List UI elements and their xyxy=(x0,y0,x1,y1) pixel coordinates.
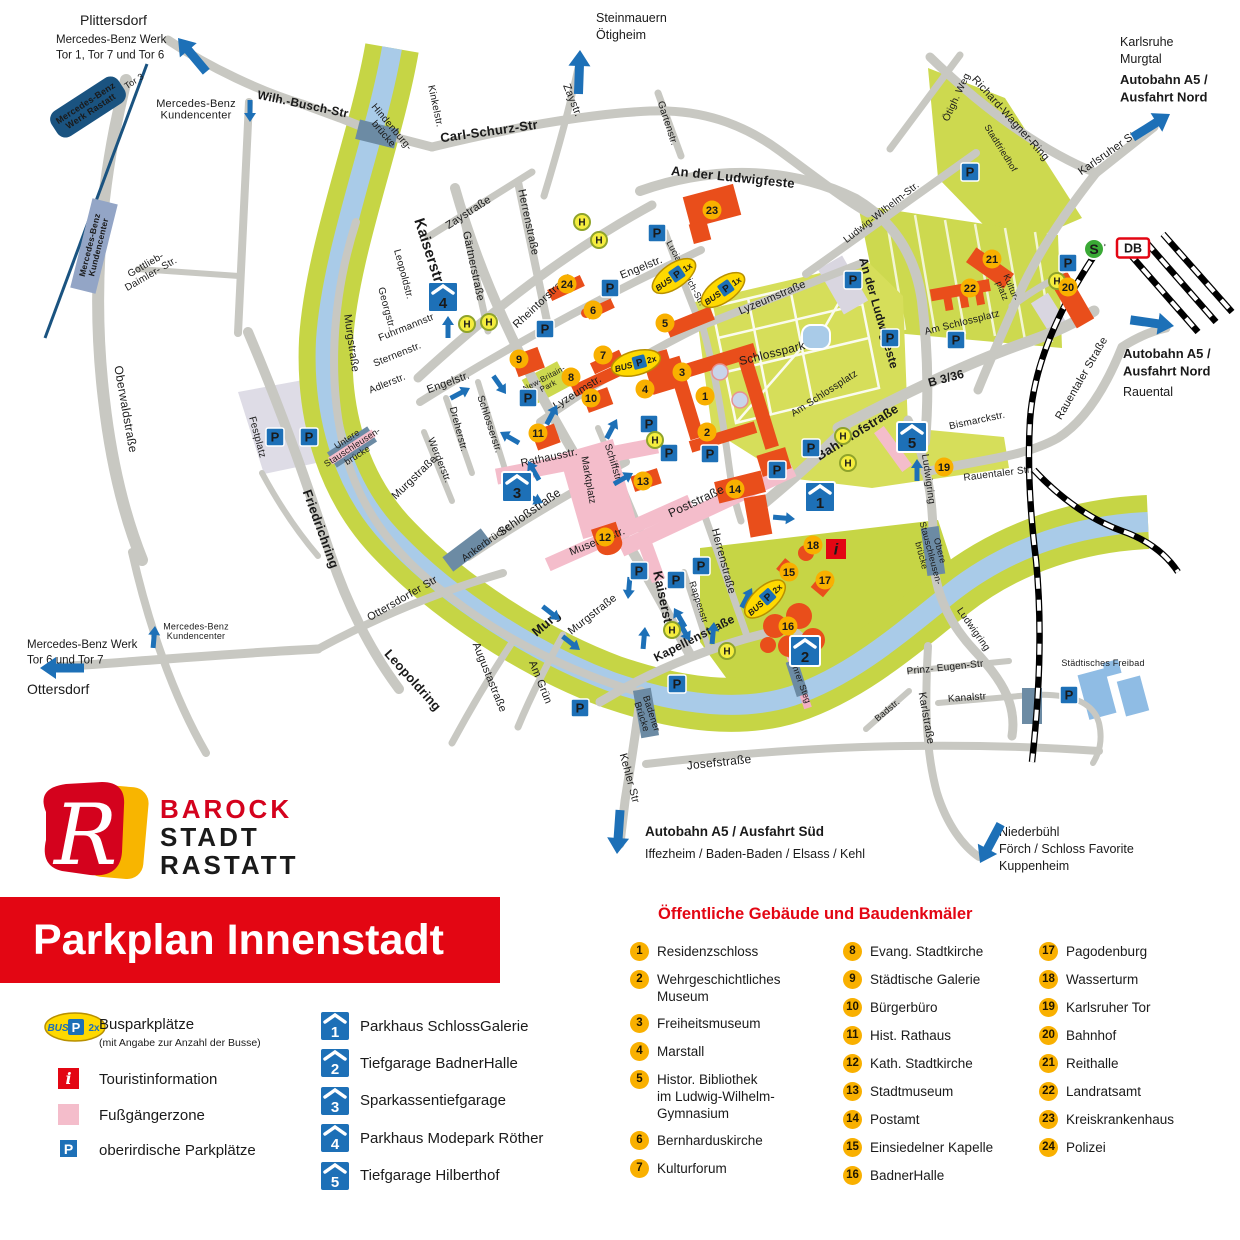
building-item: 13Stadtmuseum xyxy=(843,1082,1038,1101)
parking-icon: P xyxy=(947,331,965,349)
svg-text:P: P xyxy=(886,331,895,346)
svg-text:S: S xyxy=(1089,241,1098,257)
building-marker: 21 xyxy=(983,250,1002,269)
parking-icon: P xyxy=(667,571,685,589)
svg-text:3: 3 xyxy=(679,367,685,379)
garage-legend-icon: 4 xyxy=(320,1123,350,1153)
legend-tourist-label: Touristinformation xyxy=(99,1071,217,1088)
svg-text:P: P xyxy=(1064,256,1073,271)
garage-legend-icon: 1 xyxy=(320,1011,350,1041)
building-marker: 14 xyxy=(726,480,745,499)
garage-item: 3 Sparkassentiefgarage xyxy=(320,1086,506,1116)
one-way-arrow xyxy=(773,511,796,525)
garage-legend-icon: 3 xyxy=(320,1086,350,1116)
street-label: Sternenstr. xyxy=(372,340,423,369)
street-label: Badstr. xyxy=(873,697,902,724)
building-item-label: Freiheitsmuseum xyxy=(657,1014,761,1032)
svg-text:P: P xyxy=(645,417,654,432)
svg-text:15: 15 xyxy=(783,567,795,579)
garage-icon: 4 xyxy=(428,282,458,312)
building-item: 2Wehrgeschichtliches Museum xyxy=(630,970,840,1005)
svg-text:23: 23 xyxy=(706,205,718,217)
garage-icon: 3 xyxy=(502,472,532,502)
building-item-label: Karlsruher Tor xyxy=(1066,998,1151,1016)
svg-text:P: P xyxy=(672,573,681,588)
building-item: 14Postamt xyxy=(843,1110,1038,1129)
svg-text:13: 13 xyxy=(637,476,649,488)
parking-icon: P xyxy=(266,428,284,446)
destination-label: Autobahn A5 /Ausfahrt Nord xyxy=(1123,346,1211,379)
svg-text:P: P xyxy=(1065,688,1074,703)
street-label: Georgstr. xyxy=(375,286,397,330)
svg-text:P: P xyxy=(849,273,858,288)
building-marker: 11 xyxy=(529,424,548,443)
parking-icon: P xyxy=(961,163,979,181)
garage-item-label: Parkhaus SchlossGalerie xyxy=(360,1018,528,1035)
bus-stop-icon: H xyxy=(719,643,735,659)
db-icon: DB xyxy=(1117,239,1149,258)
svg-text:4: 4 xyxy=(642,384,649,396)
svg-text:P: P xyxy=(271,430,280,445)
legend-bus-label: Busparkplätze xyxy=(99,1016,194,1033)
building-marker: 9 xyxy=(510,350,529,369)
bus-stop-icon: H xyxy=(459,316,475,332)
svg-text:P: P xyxy=(653,226,662,241)
svg-text:DB: DB xyxy=(1124,242,1142,256)
building-marker: 16 xyxy=(779,617,798,636)
building-item-number: 12 xyxy=(843,1054,862,1073)
direction-arrow xyxy=(170,31,215,79)
building-item-label: Einsiedelner Kapelle xyxy=(870,1138,993,1156)
building-item-label: Reithalle xyxy=(1066,1054,1119,1072)
building-item-number: 1 xyxy=(630,942,649,961)
logo-word-stadt: STADT xyxy=(160,822,260,852)
street-label: Herrenstraße xyxy=(515,188,541,256)
svg-text:P: P xyxy=(706,447,715,462)
building-item-number: 19 xyxy=(1039,998,1058,1017)
svg-text:P: P xyxy=(665,446,674,461)
building-item-label: Postamt xyxy=(870,1110,920,1128)
street-label: Adlerstr. xyxy=(367,372,407,397)
garage-item: 5 Tiefgarage Hilberthof xyxy=(320,1161,500,1191)
svg-text:P: P xyxy=(966,165,975,180)
schlosspark-pond xyxy=(802,325,830,349)
street-label: Mercedes-BenzKundencenter xyxy=(156,98,236,122)
building-item: 23Kreiskrankenhaus xyxy=(1039,1110,1239,1129)
bus-stop-icon: H xyxy=(664,622,680,638)
svg-text:21: 21 xyxy=(986,254,998,266)
street-label: Karlstraße xyxy=(916,691,937,745)
building-item-label: Evang. Stadtkirche xyxy=(870,942,983,960)
building-marker: 17 xyxy=(816,571,835,590)
svg-text:H: H xyxy=(578,218,585,229)
svg-text:P: P xyxy=(697,559,706,574)
parking-icon: P xyxy=(1060,686,1078,704)
bus-stop-icon: H xyxy=(835,428,851,444)
building-item: 5Histor. Bibliothek im Ludwig-Wilhelm- G… xyxy=(630,1070,840,1122)
building-item: 1Residenzschloss xyxy=(630,942,840,961)
svg-text:P: P xyxy=(541,322,550,337)
building-item: 18Wasserturm xyxy=(1039,970,1239,989)
buildings-column-3: 17Pagodenburg18Wasserturm19Karlsruher To… xyxy=(1039,942,1239,1166)
building-item-number: 14 xyxy=(843,1110,862,1129)
destination-label: KarlsruheMurgtal xyxy=(1120,35,1174,66)
building-item-number: 23 xyxy=(1039,1110,1058,1129)
building-item: 6Bernharduskirche xyxy=(630,1131,840,1150)
svg-text:20: 20 xyxy=(1062,282,1074,294)
building-item: 22Landratsamt xyxy=(1039,1082,1239,1101)
parking-map-poster: Wilh.-Busch-StrCarl-Schurz-StrZaystr.Kin… xyxy=(0,0,1240,1240)
building-item-number: 20 xyxy=(1039,1026,1058,1045)
surface-parking-legend-icon: P xyxy=(59,1139,78,1158)
legend-surface-label: oberirdische Parkplätze xyxy=(99,1142,256,1159)
barock-stadt-rastatt-logo: R BAROCK STADT RASTATT xyxy=(28,778,358,888)
street-label: Städtisches Freibad xyxy=(1061,658,1144,668)
building-item: 10Bürgerbüro xyxy=(843,998,1038,1017)
building-item-label: Wehrgeschichtliches Museum xyxy=(657,970,781,1005)
street-label: Schlosserstr. xyxy=(475,394,504,454)
street-label: Rauentaler Straße xyxy=(1053,335,1110,422)
street-label: Bismarckstr. xyxy=(948,410,1006,433)
bus-stop-icon: H xyxy=(481,314,497,330)
destination-label: SteinmauernÖtigheim xyxy=(596,11,667,42)
parking-icon: P xyxy=(648,224,666,242)
title-banner: Parkplan Innenstadt xyxy=(0,897,500,983)
legend-bus-sublabel: (mit Angabe zur Anzahl der Busse) xyxy=(99,1037,261,1049)
building-item: 7Kulturforum xyxy=(630,1159,840,1178)
svg-text:P: P xyxy=(305,430,314,445)
street-label: Kehler Str xyxy=(617,752,642,804)
building-marker: 19 xyxy=(935,458,954,477)
svg-text:H: H xyxy=(595,236,602,247)
building-item-label: Bahnhof xyxy=(1066,1026,1116,1044)
building-marker: 23 xyxy=(703,201,722,220)
building-item: 11Hist. Rathaus xyxy=(843,1026,1038,1045)
garage-icon: 2 xyxy=(790,636,820,666)
building-item-number: 24 xyxy=(1039,1138,1058,1157)
building-marker: 7 xyxy=(594,346,613,365)
svg-text:9: 9 xyxy=(516,354,522,366)
building-item-number: 10 xyxy=(843,998,862,1017)
parking-icon: P xyxy=(802,439,820,457)
building-item-number: 11 xyxy=(843,1026,862,1045)
logo-word-rastatt: RASTATT xyxy=(160,850,298,880)
bus-stop-icon: H xyxy=(574,214,590,230)
buildings-column-1: 1Residenzschloss2Wehrgeschichtliches Mus… xyxy=(630,942,840,1187)
parking-icon: P xyxy=(640,415,658,433)
svg-text:4: 4 xyxy=(439,295,448,312)
building-item: 15Einsiedelner Kapelle xyxy=(843,1138,1038,1157)
building-marker: 5 xyxy=(656,314,675,333)
parking-icon: P xyxy=(571,699,589,717)
building-item-label: Kath. Stadtkirche xyxy=(870,1054,973,1072)
parking-icon: P xyxy=(601,279,619,297)
legend-pedestrian-label: Fußgängerzone xyxy=(99,1107,205,1124)
building-item: 17Pagodenburg xyxy=(1039,942,1239,961)
svg-text:P: P xyxy=(807,441,816,456)
street-label: Leopoldstr. xyxy=(391,248,415,300)
svg-text:3: 3 xyxy=(331,1099,339,1116)
building-marker: 22 xyxy=(961,279,980,298)
building-item-label: Kreiskrankenhaus xyxy=(1066,1110,1174,1128)
building-marker: 18 xyxy=(804,536,823,555)
svg-text:P: P xyxy=(635,564,644,579)
buildings-heading: Öffentliche Gebäude und Baudenkmäler xyxy=(658,905,972,924)
parking-icon: P xyxy=(536,320,554,338)
building-item-number: 13 xyxy=(843,1082,862,1101)
destination-label: Mercedes-Benz WerkTor 1, Tor 7 und Tor 6 xyxy=(56,34,167,62)
destination-label: Plittersdorf xyxy=(80,12,147,28)
parking-icon: P xyxy=(660,444,678,462)
garage-legend-icon: 2 xyxy=(320,1048,350,1078)
building-item-number: 8 xyxy=(843,942,862,961)
building-item-number: 21 xyxy=(1039,1054,1058,1073)
street-label: Mercedes-BenzKundencenter xyxy=(163,621,229,641)
building-item-label: Polizei xyxy=(1066,1138,1106,1156)
svg-text:P: P xyxy=(952,333,961,348)
building-marker: 10 xyxy=(582,389,601,408)
svg-text:1: 1 xyxy=(331,1024,339,1041)
svg-text:H: H xyxy=(668,626,675,637)
svg-text:16: 16 xyxy=(782,621,794,633)
building-marker: 15 xyxy=(780,563,799,582)
one-way-arrow xyxy=(442,316,454,338)
parking-icon: P xyxy=(630,562,648,580)
street-label: Carl-Schurz-Str xyxy=(439,117,538,146)
parking-icon: P xyxy=(701,445,719,463)
svg-text:H: H xyxy=(463,320,470,331)
street-label: Murgstraße xyxy=(389,453,439,502)
building-item-label: Stadtmuseum xyxy=(870,1082,953,1100)
building-item-label: Marstall xyxy=(657,1042,704,1060)
tourist-info-legend-icon: i xyxy=(58,1068,79,1089)
building-item-label: Kulturforum xyxy=(657,1159,727,1177)
destination-label: Autobahn A5 / Ausfahrt Süd xyxy=(645,824,824,839)
svg-text:4: 4 xyxy=(331,1136,340,1153)
building-marker: 8 xyxy=(562,368,581,387)
building-item: 24Polizei xyxy=(1039,1138,1239,1157)
street-label: B 3/36 xyxy=(927,367,966,390)
parking-icon: P xyxy=(519,389,537,407)
svg-text:10: 10 xyxy=(585,393,597,405)
garage-item: 1 Parkhaus SchlossGalerie xyxy=(320,1011,528,1041)
garage-legend-icon: 5 xyxy=(320,1161,350,1191)
logo-mark: R xyxy=(52,786,117,884)
garage-item: 2 Tiefgarage BadnerHalle xyxy=(320,1048,518,1078)
garage-item-label: Tiefgarage BadnerHalle xyxy=(360,1055,518,1072)
page-title: Parkplan Innenstadt xyxy=(0,897,500,983)
sbahn-icon: S xyxy=(1084,239,1104,259)
building-item-number: 22 xyxy=(1039,1082,1058,1101)
building-marker: 2 xyxy=(698,423,717,442)
svg-text:3: 3 xyxy=(513,485,521,502)
building-item-number: 4 xyxy=(630,1042,649,1061)
street-label: Prinz- Eugen-Str xyxy=(906,658,984,677)
svg-text:H: H xyxy=(844,459,851,470)
building-item: 12Kath. Stadtkirche xyxy=(843,1054,1038,1073)
one-way-arrow xyxy=(488,373,510,398)
svg-text:24: 24 xyxy=(561,279,574,291)
building-marker: 1 xyxy=(696,387,715,406)
svg-text:H: H xyxy=(839,432,846,443)
building-item-number: 3 xyxy=(630,1014,649,1033)
destination-label: Rauental xyxy=(1123,385,1173,399)
svg-text:1: 1 xyxy=(816,495,824,512)
building-marker: 3 xyxy=(673,363,692,382)
building-item-number: 2 xyxy=(630,970,649,989)
building-marker: 24 xyxy=(558,275,577,294)
garage-icon: 1 xyxy=(805,482,835,512)
one-way-arrow xyxy=(637,626,651,649)
building-item-number: 9 xyxy=(843,970,862,989)
destination-label: Ottersdorf xyxy=(27,681,89,697)
destination-label: Autobahn A5 /Ausfahrt Nord xyxy=(1120,72,1208,105)
svg-text:22: 22 xyxy=(964,283,976,295)
building-item-number: 18 xyxy=(1039,970,1058,989)
svg-text:2: 2 xyxy=(801,649,809,666)
building-item-number: 7 xyxy=(630,1159,649,1178)
svg-text:14: 14 xyxy=(729,484,742,496)
svg-text:H: H xyxy=(723,647,730,658)
building-item-label: Histor. Bibliothek im Ludwig-Wilhelm- Gy… xyxy=(657,1070,775,1122)
svg-text:1: 1 xyxy=(702,391,708,403)
building-item: 19Karlsruher Tor xyxy=(1039,998,1239,1017)
building-item: 21Reithalle xyxy=(1039,1054,1239,1073)
building-item: 16BadnerHalle xyxy=(843,1166,1038,1185)
destination-label: NiederbühlFörch / Schloss FavoriteKuppen… xyxy=(999,825,1134,873)
building-item-label: Landratsamt xyxy=(1066,1082,1141,1100)
building-marker: 4 xyxy=(636,380,655,399)
freibad-building xyxy=(1117,676,1149,717)
garage-item: 4 Parkhaus Modepark Röther xyxy=(320,1123,543,1153)
building-item-number: 6 xyxy=(630,1131,649,1150)
building-item: 9Städtische Galerie xyxy=(843,970,1038,989)
svg-text:i: i xyxy=(834,542,839,559)
destination-label: Iffezheim / Baden-Baden / Elsass / Kehl xyxy=(645,847,865,861)
svg-text:5: 5 xyxy=(908,435,916,452)
building-item: 4Marstall xyxy=(630,1042,840,1061)
svg-text:11: 11 xyxy=(532,428,544,440)
parking-icon: P xyxy=(668,675,686,693)
bus-p-text: P xyxy=(72,1020,81,1035)
building-item: 8Evang. Stadtkirche xyxy=(843,942,1038,961)
building-marker: 13 xyxy=(634,472,653,491)
building-item-label: BadnerHalle xyxy=(870,1166,944,1184)
building-item-number: 5 xyxy=(630,1070,649,1089)
garage-icon: 5 xyxy=(897,422,927,452)
building-item: 20Bahnhof xyxy=(1039,1026,1239,1045)
building-item: 3Freiheitsmuseum xyxy=(630,1014,840,1033)
svg-text:19: 19 xyxy=(938,462,950,474)
svg-text:12: 12 xyxy=(599,532,611,544)
svg-text:P: P xyxy=(673,677,682,692)
buildings-column-2: 8Evang. Stadtkirche9Städtische Galerie10… xyxy=(843,942,1038,1194)
svg-text:H: H xyxy=(651,436,658,447)
svg-text:6: 6 xyxy=(590,305,596,317)
street-label: Dreherstr. xyxy=(447,406,470,453)
street-label: Murgstraße xyxy=(566,592,619,637)
logo-word-barock: BAROCK xyxy=(160,794,292,824)
pedestrian-zone-legend-swatch xyxy=(58,1104,79,1125)
svg-text:7: 7 xyxy=(600,350,606,362)
garage-item-label: Parkhaus Modepark Röther xyxy=(360,1130,543,1147)
building-item-label: Bernharduskirche xyxy=(657,1131,763,1149)
building-item-label: Residenzschloss xyxy=(657,942,758,960)
svg-text:18: 18 xyxy=(807,540,819,552)
garage-item-label: Tiefgarage Hilberthof xyxy=(360,1167,500,1184)
building-item-label: Wasserturm xyxy=(1066,970,1138,988)
building-marker: 6 xyxy=(584,301,603,320)
parking-icon: P xyxy=(768,461,786,479)
svg-text:H: H xyxy=(485,318,492,329)
parking-icon: P xyxy=(844,271,862,289)
bus-stop-icon: H xyxy=(647,432,663,448)
building-item-label: Hist. Rathaus xyxy=(870,1026,951,1044)
parking-icon: P xyxy=(692,557,710,575)
bus-stop-icon: H xyxy=(840,455,856,471)
svg-text:5: 5 xyxy=(662,318,668,330)
building-item-label: Städtische Galerie xyxy=(870,970,980,988)
street-label: Kinkelstr. xyxy=(425,84,445,128)
building-item-number: 15 xyxy=(843,1138,862,1157)
svg-text:P: P xyxy=(606,281,615,296)
parking-icon: P xyxy=(881,329,899,347)
svg-text:P: P xyxy=(773,463,782,478)
building-marker: 20 xyxy=(1059,278,1078,297)
street-label: Gottlieb-Daimler- Str. xyxy=(118,246,179,294)
svg-text:8: 8 xyxy=(568,372,574,384)
parking-icon: P xyxy=(300,428,318,446)
building-item-label: Bürgerbüro xyxy=(870,998,938,1016)
bus-text: BUS xyxy=(47,1023,68,1034)
svg-text:P: P xyxy=(524,391,533,406)
building-marker: 12 xyxy=(596,528,615,547)
street-label: Gartenstr. xyxy=(655,100,680,147)
svg-text:5: 5 xyxy=(331,1174,339,1191)
bus-stop-icon: H xyxy=(591,232,607,248)
garage-item-label: Sparkassentiefgarage xyxy=(360,1092,506,1109)
street-label: Wilh.-Busch-Str xyxy=(256,88,350,121)
svg-text:2: 2 xyxy=(331,1061,339,1078)
tourist-info-icon: i xyxy=(826,539,846,559)
svg-text:2: 2 xyxy=(704,427,710,439)
svg-text:17: 17 xyxy=(819,575,831,587)
parking-icon: P xyxy=(1059,254,1077,272)
building-item-label: Pagodenburg xyxy=(1066,942,1147,960)
street-label: Kanalstr xyxy=(948,691,987,705)
building-item-number: 16 xyxy=(843,1166,862,1185)
svg-text:P: P xyxy=(576,701,585,716)
building-item-number: 17 xyxy=(1039,942,1058,961)
